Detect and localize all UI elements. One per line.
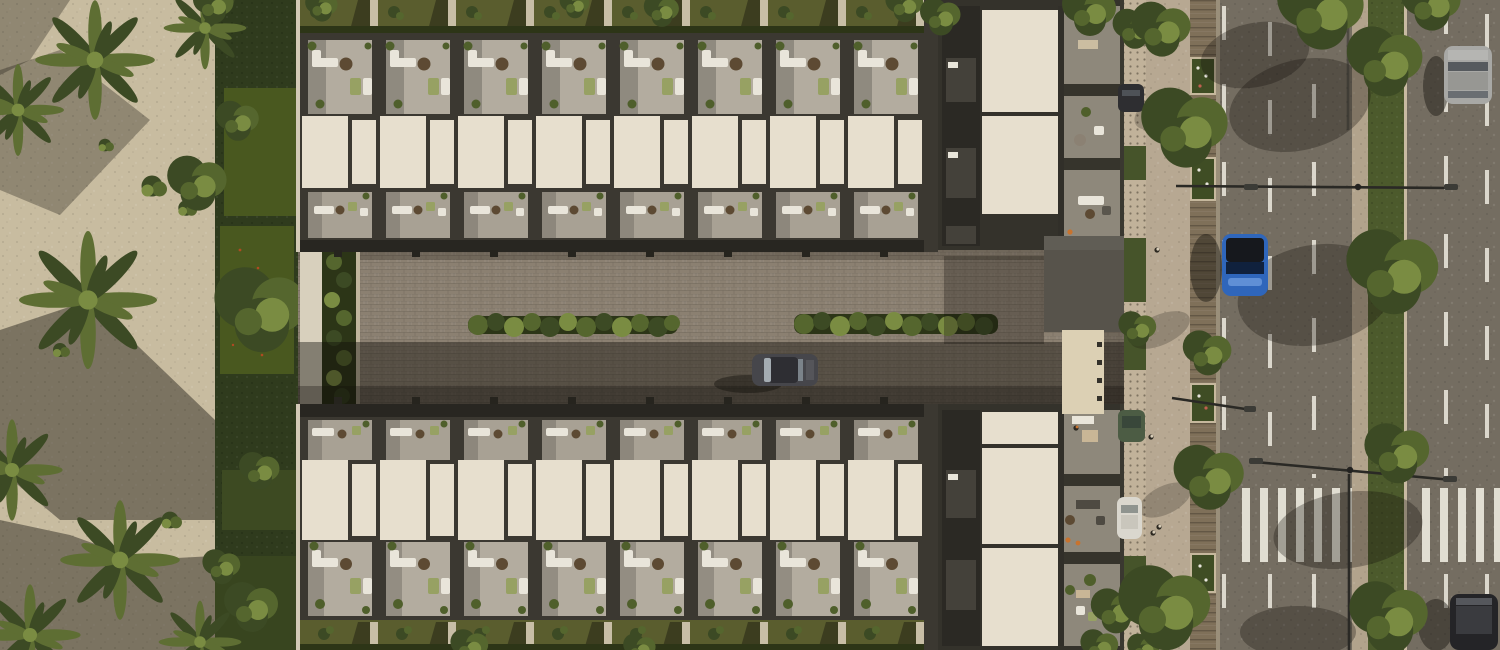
potted-plant [1065, 585, 1075, 595]
car-glass [1456, 598, 1492, 605]
terrace-wall [1064, 158, 1120, 170]
sofa [1072, 416, 1094, 424]
townhouse-unit [300, 397, 378, 650]
curb [1216, 0, 1220, 650]
balcony [946, 560, 976, 610]
balcony-sofa [948, 474, 958, 480]
desert-west [0, 0, 307, 650]
chair [1076, 606, 1085, 615]
townhouse-unit [690, 0, 768, 257]
parked-green-car [1118, 410, 1145, 442]
car-roof [1448, 72, 1488, 90]
townhouse-unit [612, 0, 690, 257]
avenue-blue-car [1190, 234, 1268, 302]
table [1076, 590, 1090, 598]
car-trunk [806, 360, 814, 380]
parked-white-car [1117, 497, 1142, 539]
car-rear-glass [1448, 91, 1488, 98]
avenue-black-car [1418, 594, 1498, 650]
chair [1096, 516, 1105, 525]
orange-cushion [1065, 537, 1070, 542]
potted-plant [1081, 107, 1091, 117]
sofa [1078, 196, 1104, 205]
canopy-shadow [944, 256, 1044, 344]
car-glass [1121, 505, 1138, 513]
aerial-render [0, 0, 1500, 650]
car-glass [1122, 416, 1141, 428]
car-hood [1448, 50, 1488, 60]
townhouse-unit [612, 397, 690, 650]
townhouse-unit [846, 0, 924, 257]
townhouse-unit [378, 0, 456, 257]
townhouse-unit [534, 397, 612, 650]
round-table [1085, 209, 1095, 219]
car-windshield [1226, 238, 1264, 262]
townhouse-unit [456, 0, 534, 257]
chair [1094, 126, 1104, 135]
avenue [1172, 0, 1500, 650]
pedestrian [1150, 530, 1155, 535]
terrace-wall [1064, 552, 1120, 564]
pedestrian [1154, 247, 1159, 252]
car-highlight [1228, 278, 1262, 286]
wicker-chair [1074, 134, 1086, 146]
townhouse-unit [456, 397, 534, 650]
roof-slab [982, 448, 1060, 544]
scene-svg [0, 0, 1500, 650]
townhouse-unit [846, 397, 924, 650]
roof-slab [982, 116, 1060, 214]
orange-cushion [1067, 229, 1072, 234]
balcony [946, 226, 976, 244]
canopy-roof [1044, 236, 1128, 332]
car-cabin [768, 357, 798, 383]
pedestrian [1148, 434, 1153, 439]
roof-terrace-divider [1058, 410, 1064, 646]
car-roof [1121, 515, 1138, 529]
apartment-block-north [938, 0, 1124, 250]
townhouse-unit [300, 0, 378, 257]
orange-cushion [1076, 541, 1081, 546]
car-roof [1456, 606, 1492, 634]
lounge-bed [1082, 430, 1098, 442]
central-mews [298, 250, 1144, 406]
roof-slab [982, 412, 1060, 444]
west-facade [942, 6, 980, 246]
balcony-sofa [948, 152, 958, 158]
row-end-wall [296, 0, 300, 252]
pedestrian-orange [1073, 425, 1078, 430]
terrace-wall [1064, 474, 1120, 486]
car-windshield [764, 358, 771, 382]
sofa [1076, 500, 1100, 509]
row-end-wall [296, 404, 300, 650]
townhouse-unit [768, 0, 846, 257]
parked-dark-car [1118, 84, 1144, 112]
car-glass [1122, 90, 1140, 96]
townhouse-unit [378, 397, 456, 650]
townhouse-unit [690, 397, 768, 650]
terrace-wall [1064, 84, 1120, 96]
palm-tree [60, 500, 180, 620]
palm-tree [19, 231, 157, 369]
hedge-box [1124, 238, 1146, 302]
car-rear-glass [798, 359, 803, 381]
crosswalk-east [1412, 488, 1500, 562]
chair [1102, 206, 1111, 215]
pedestrian [1156, 524, 1161, 529]
balcony-sofa [948, 62, 958, 68]
townhouse-unit [768, 397, 846, 650]
row-end-connector [924, 404, 938, 650]
potted-plant [1084, 574, 1096, 586]
roof-slab [982, 548, 1060, 646]
row-end-connector [924, 0, 938, 252]
townhouse-unit [534, 0, 612, 257]
west-facade [942, 410, 980, 646]
canopy-highlight [1044, 236, 1128, 250]
car-roof [1226, 262, 1264, 274]
round-table [1065, 515, 1075, 525]
hedge-box [1124, 146, 1146, 180]
roof-slab [982, 10, 1060, 112]
lounge-bed [1078, 40, 1098, 49]
townhouse-row-south [296, 397, 938, 650]
car-windshield [1448, 62, 1488, 71]
median-curb [1404, 0, 1407, 650]
car-shadow [1190, 234, 1222, 302]
townhouse-row-north [296, 0, 938, 257]
palm-tree [35, 0, 155, 120]
roof-terrace-divider [1058, 6, 1064, 248]
